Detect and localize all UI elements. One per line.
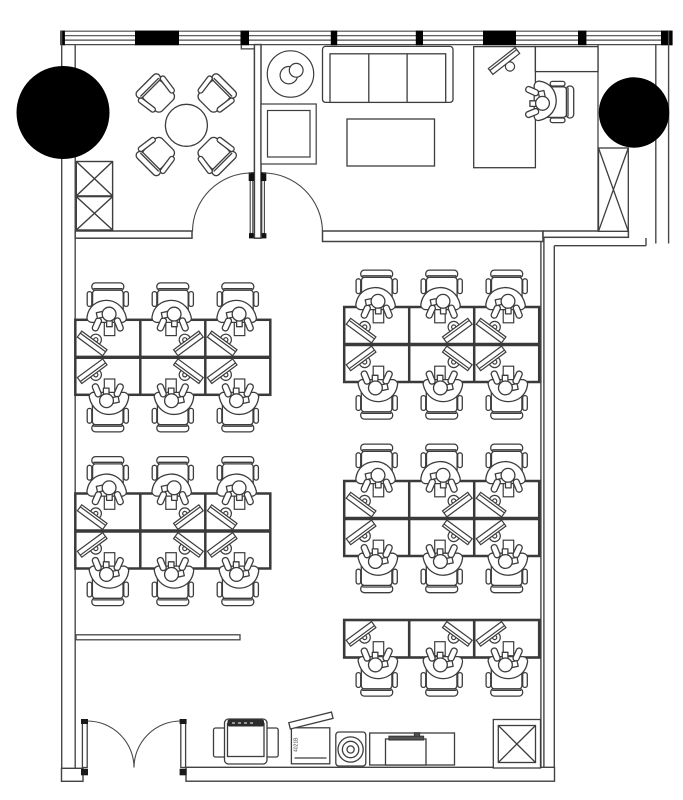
svg-text:4021B: 4021B <box>294 737 300 752</box>
